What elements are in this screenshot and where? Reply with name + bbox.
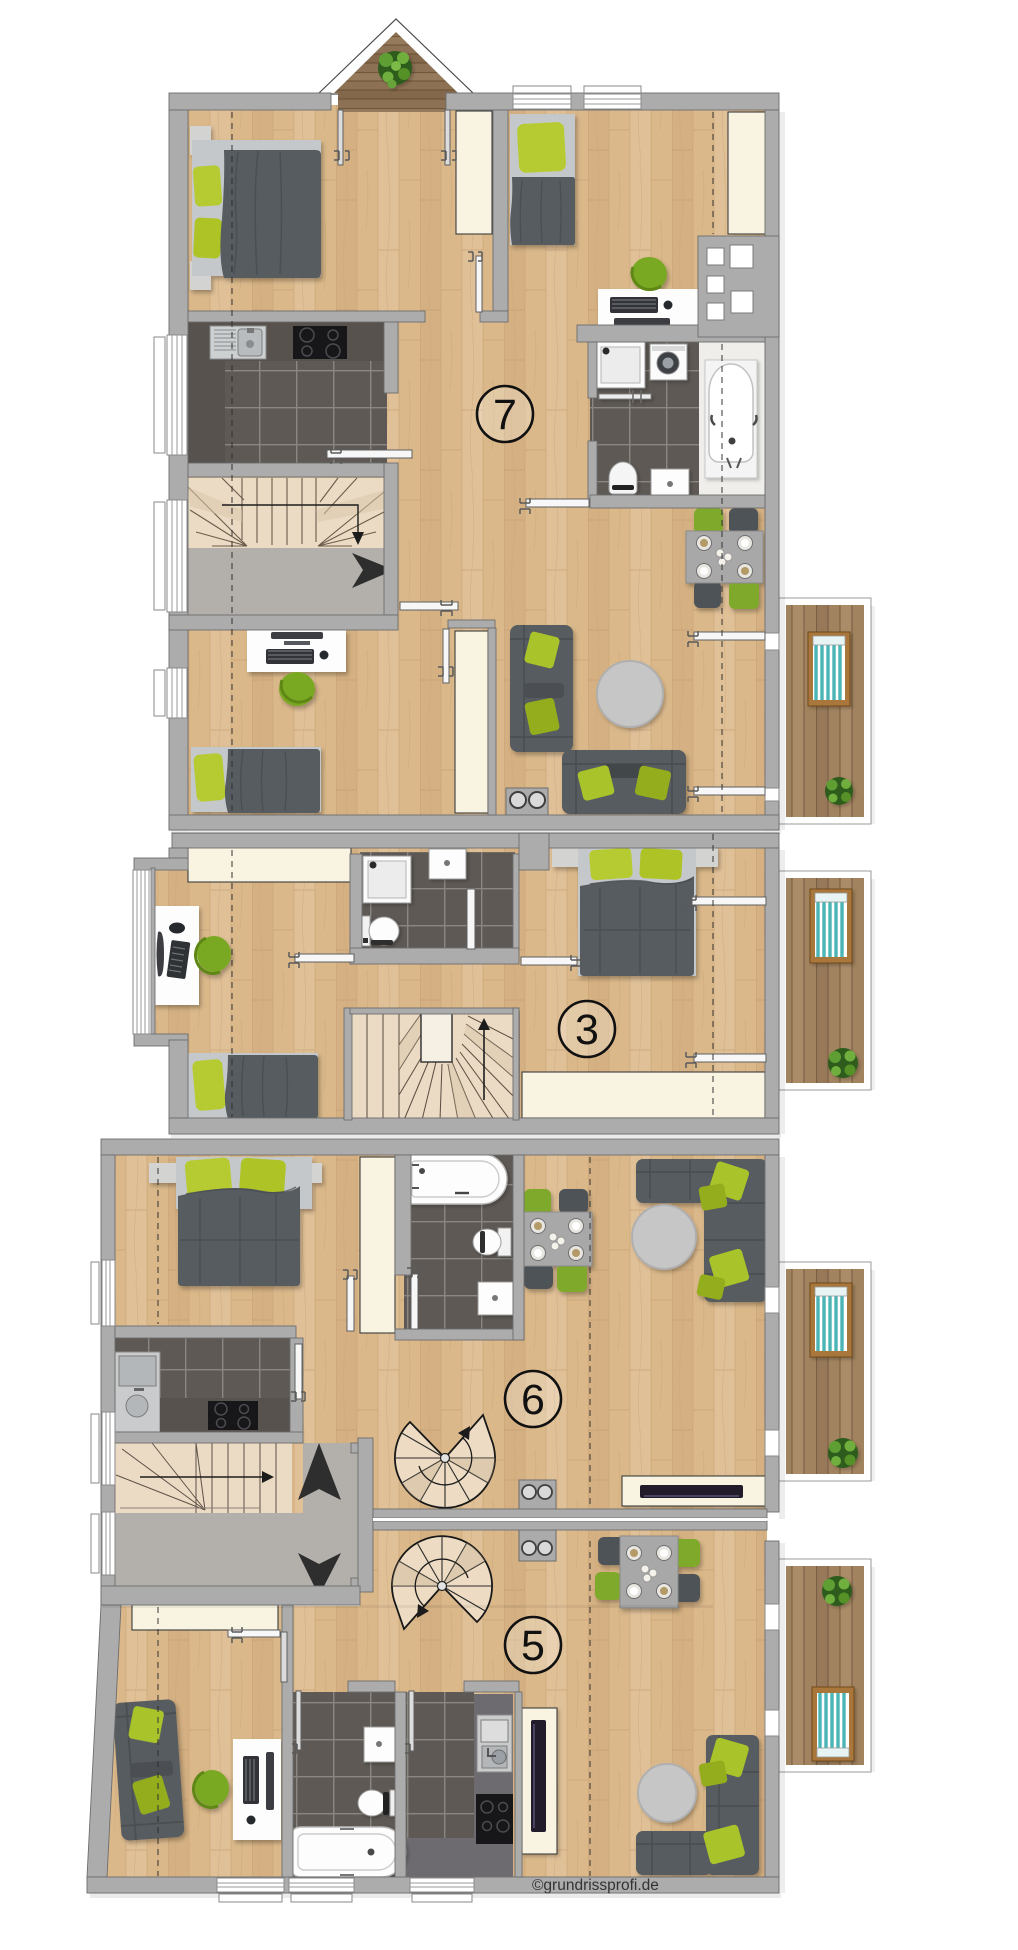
- svg-text:©grundrissprofi.de: ©grundrissprofi.de: [532, 1877, 659, 1894]
- svg-text:3: 3: [575, 1006, 599, 1054]
- svg-text:7: 7: [493, 391, 517, 439]
- svg-text:6: 6: [521, 1376, 545, 1424]
- svg-text:5: 5: [521, 1622, 545, 1670]
